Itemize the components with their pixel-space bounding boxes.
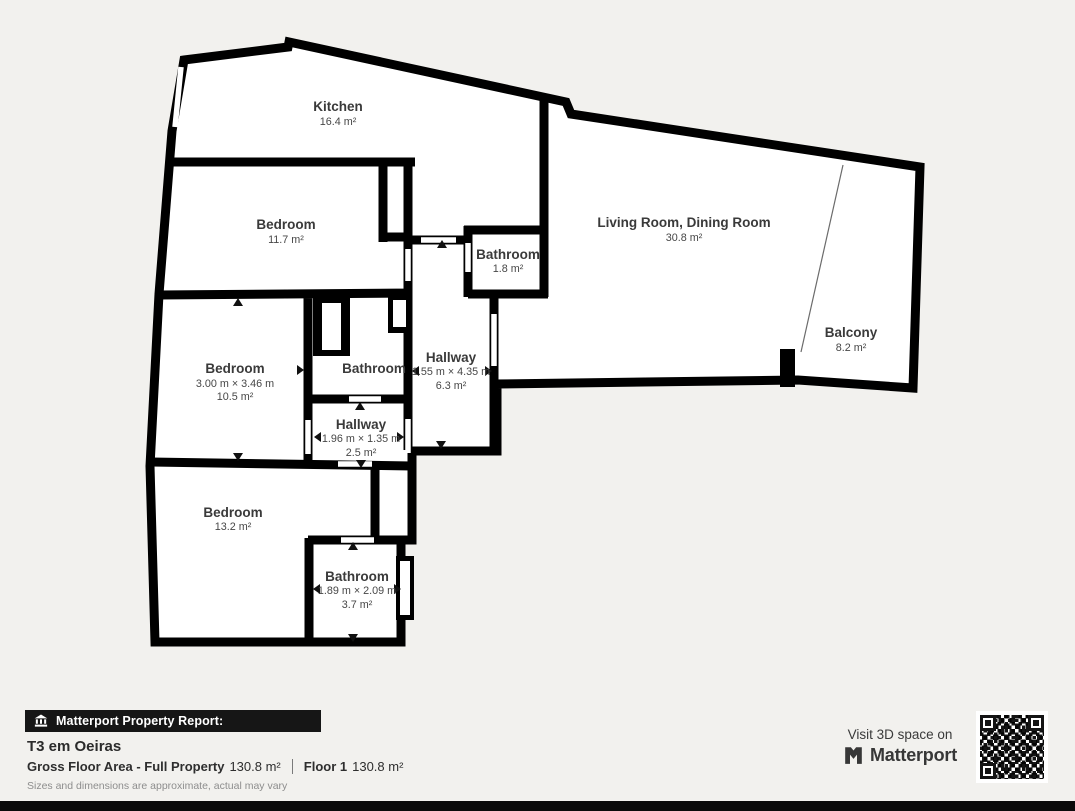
- disclaimer-text: Sizes and dimensions are approximate, ac…: [27, 780, 287, 792]
- qr-finder-icon: [1028, 715, 1044, 731]
- matterport-logo: Matterport: [836, 745, 964, 766]
- room-area: 6.3 m²: [436, 380, 467, 392]
- qr-code: [976, 711, 1048, 783]
- room-name: Hallway: [336, 417, 387, 432]
- report-banner-label: Matterport Property Report:: [56, 714, 223, 728]
- room-name: Bathroom: [476, 247, 540, 262]
- room-area: 10.5 m²: [217, 391, 254, 403]
- divider: [292, 759, 293, 774]
- gross-floor-area-value: 130.8 m²: [229, 759, 280, 774]
- room-dimensions: 1.89 m × 2.09 m: [318, 585, 396, 597]
- room-name: Bedroom: [205, 361, 264, 376]
- room-name: Kitchen: [313, 99, 363, 114]
- qr-finder-icon: [980, 715, 996, 731]
- room-dimensions: 3.00 m × 3.46 m: [196, 378, 274, 390]
- floorplan-page: Kitchen 16.4 m² Bedroom 11.7 m² Bathroom…: [0, 0, 1075, 811]
- room-name: Bathroom: [325, 569, 389, 584]
- matterport-wordmark: Matterport: [870, 745, 957, 766]
- matterport-logo-icon: [843, 745, 864, 766]
- qr-modules: [980, 715, 1044, 779]
- room-name: Bedroom: [203, 505, 262, 520]
- balcony-door-jamb: [780, 349, 795, 387]
- room-name: Bedroom: [256, 217, 315, 232]
- room-area: 30.8 m²: [666, 232, 703, 244]
- room-name: Living Room, Dining Room: [597, 215, 770, 230]
- floor-area-line: Gross Floor Area - Full Property 130.8 m…: [27, 759, 403, 774]
- room-area: 2.5 m²: [346, 447, 377, 459]
- room-area: 16.4 m²: [320, 116, 357, 128]
- room-area: 1.8 m²: [493, 263, 524, 275]
- gross-floor-area-label: Gross Floor Area - Full Property: [27, 759, 224, 774]
- property-title: T3 em Oeiras: [27, 738, 121, 755]
- bottom-black-bar: [0, 801, 1075, 811]
- floor-value: 130.8 m²: [352, 759, 403, 774]
- room-name: Hallway: [426, 350, 477, 365]
- floor-label: Floor 1: [304, 759, 347, 774]
- outer-walls: [150, 42, 920, 642]
- room-dimensions: 1.96 m × 1.35 m: [322, 433, 400, 445]
- visit-3d-cta: Visit 3D space on Matterport: [836, 727, 964, 766]
- room-label-kitchen: Kitchen 16.4 m²: [313, 99, 363, 128]
- building-icon: [34, 714, 48, 728]
- qr-finder-icon: [980, 763, 996, 779]
- room-dimensions: 1.55 m × 4.35 m: [412, 366, 490, 378]
- room-name: Bathroom: [342, 361, 406, 376]
- room-label-bathroom-middle: Bathroom: [342, 361, 406, 376]
- room-area: 11.7 m²: [268, 234, 304, 246]
- room-area: 8.2 m²: [836, 342, 867, 354]
- visit-3d-text: Visit 3D space on: [836, 727, 964, 742]
- room-area: 3.7 m²: [342, 599, 373, 611]
- report-banner: Matterport Property Report:: [25, 710, 321, 732]
- room-area: 13.2 m²: [215, 521, 252, 533]
- room-name: Balcony: [825, 325, 878, 340]
- floorplan-drawing: Kitchen 16.4 m² Bedroom 11.7 m² Bathroom…: [0, 0, 1075, 700]
